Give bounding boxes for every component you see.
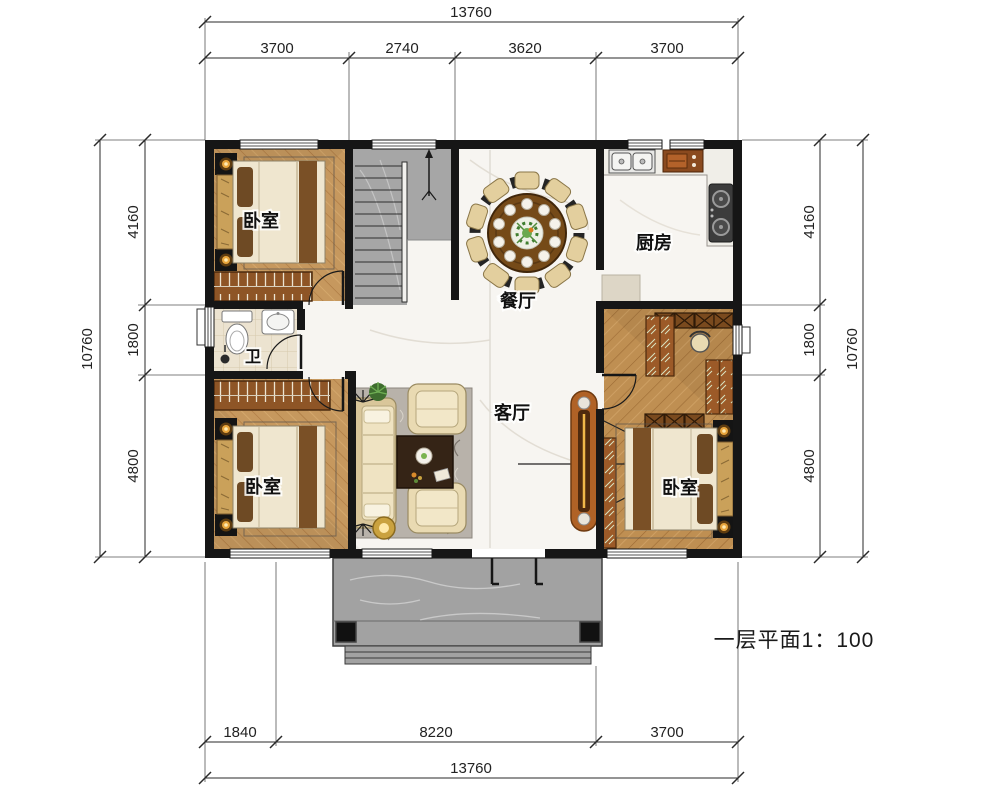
room-label-kitchen: 厨房 — [636, 232, 672, 253]
window-kitchen — [628, 140, 704, 149]
dim-right-seg-3: 4800 — [801, 449, 818, 482]
dim-top-seg-2: 2740 — [385, 40, 418, 57]
tv-console — [571, 391, 597, 531]
dim-bottom-seg-1: 1840 — [223, 724, 256, 741]
sofa — [350, 398, 396, 528]
room-label-bedroom-bottom-right: 卧室 — [662, 477, 698, 498]
kitchen-sink-icon — [609, 150, 655, 173]
room-label-bedroom-bottom-left: 卧室 — [245, 476, 281, 497]
dimension-left: 10760 4160 1800 4800 — [79, 134, 205, 563]
room-label-dining: 餐厅 — [499, 290, 536, 311]
dim-left-total: 10760 — [79, 328, 96, 370]
window-bottom-bedroom-right — [607, 549, 687, 558]
armchair-top — [408, 384, 466, 434]
porch-column — [336, 622, 356, 642]
room-label-living: 客厅 — [494, 402, 530, 423]
dim-left-seg-1: 4160 — [125, 205, 142, 238]
dim-left-seg-3: 4800 — [125, 449, 142, 482]
bedroom-bottom-left-furniture — [214, 381, 336, 536]
porch — [333, 558, 602, 664]
dim-top-seg-1: 3700 — [260, 40, 293, 57]
plan-title: 一层平面1：100 — [714, 629, 875, 652]
floor-plan-page: 卧室 厨房 餐厅 卫 客厅 卧室 卧室 13760 3700 2740 3620… — [0, 0, 1000, 800]
porch-column — [580, 622, 600, 642]
window-top-bedroom — [240, 140, 318, 149]
dim-top-seg-4: 3700 — [650, 40, 683, 57]
dim-bottom-total: 13760 — [450, 760, 492, 777]
room-label-bedroom-top-left: 卧室 — [243, 210, 279, 231]
window-right-dressing — [733, 325, 750, 355]
window-bottom-living — [362, 549, 432, 558]
dimension-right: 4160 1800 4800 10760 — [742, 134, 869, 563]
dim-top-seg-3: 3620 — [508, 40, 541, 57]
kitchen-appliance-icon — [663, 150, 703, 172]
dim-bottom-seg-3: 3700 — [650, 724, 683, 741]
dim-right-seg-2: 1800 — [801, 323, 818, 356]
kitchen-doormat — [602, 275, 640, 303]
armchair-bottom — [408, 483, 466, 533]
bath-sink-icon — [262, 310, 294, 334]
dim-right-total: 10760 — [844, 328, 861, 370]
dim-right-seg-1: 4160 — [801, 205, 818, 238]
dim-left-seg-2: 1800 — [125, 323, 142, 356]
window-top-stairs — [372, 140, 436, 149]
stove-icon — [709, 184, 733, 242]
dimension-top: 13760 3700 2740 3620 3700 — [199, 4, 744, 140]
window-bathroom — [197, 307, 214, 347]
porch-steps — [345, 646, 591, 664]
coffee-table — [397, 436, 453, 488]
chair-icon — [690, 332, 710, 352]
dim-top-total: 13760 — [450, 4, 492, 21]
dim-bottom-seg-2: 8220 — [419, 724, 452, 741]
floor-plan-drawing: 卧室 厨房 餐厅 卫 客厅 卧室 卧室 13760 3700 2740 3620… — [0, 0, 1000, 800]
window-bottom-bedroom-left — [230, 549, 330, 558]
room-label-bathroom: 卫 — [245, 349, 261, 366]
